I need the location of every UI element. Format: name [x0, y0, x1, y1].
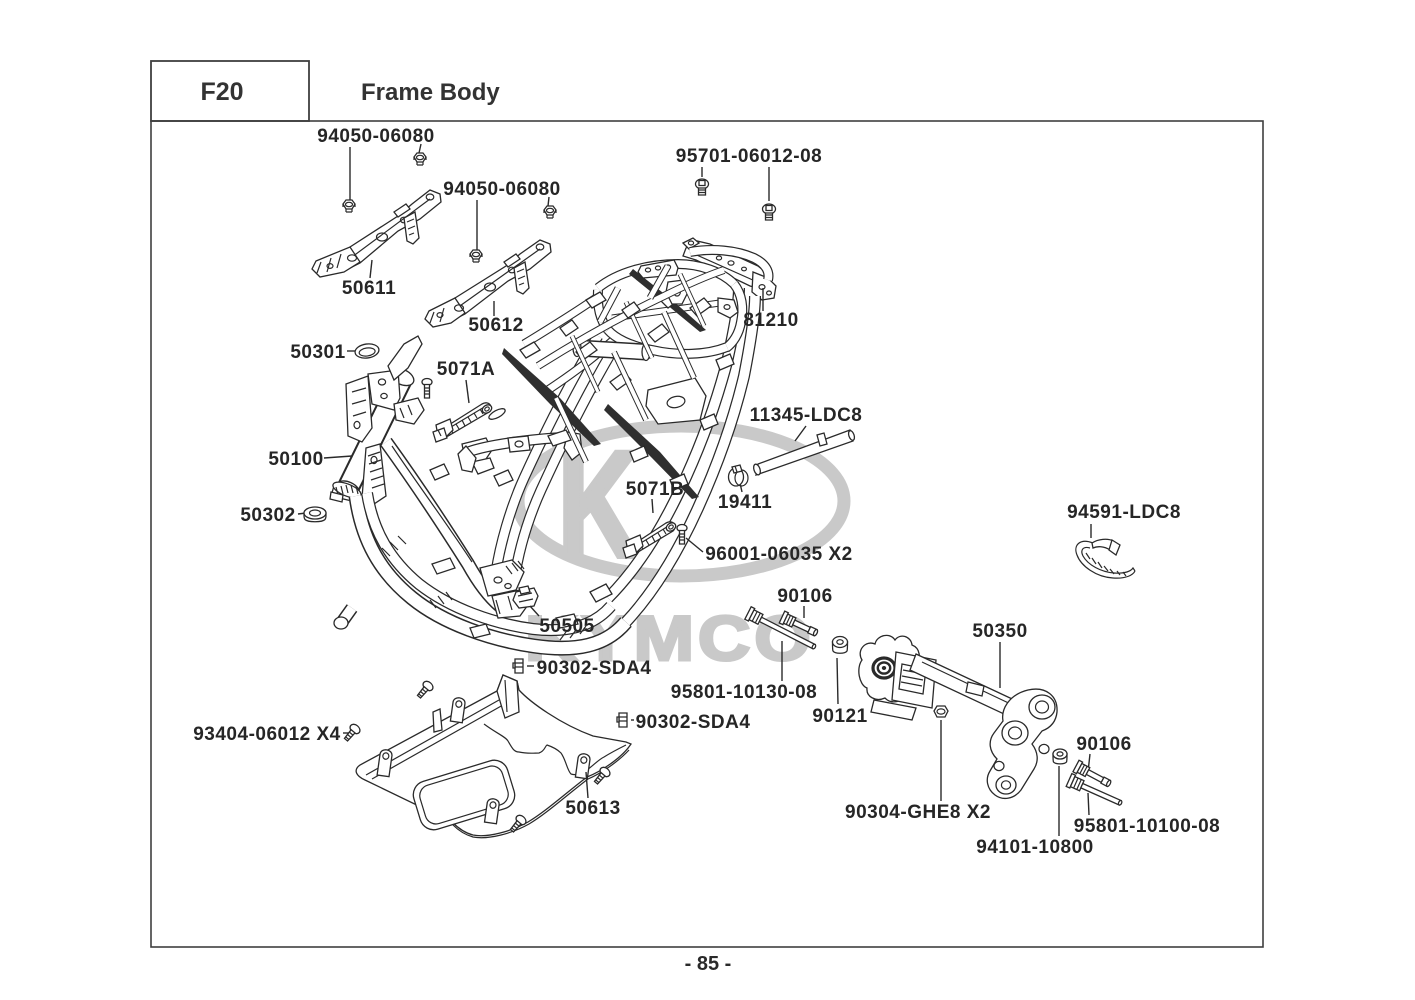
svg-text:50505: 50505: [539, 616, 594, 637]
svg-text:50302: 50302: [240, 505, 295, 526]
svg-text:Frame Body: Frame Body: [361, 79, 500, 106]
svg-text:90121: 90121: [812, 706, 867, 727]
svg-text:11345-LDC8: 11345-LDC8: [750, 405, 863, 426]
svg-text:- 85 -: - 85 -: [685, 953, 732, 975]
svg-text:50613: 50613: [565, 798, 620, 819]
svg-text:90302-SDA4: 90302-SDA4: [636, 712, 751, 733]
svg-text:19411: 19411: [718, 492, 772, 513]
svg-text:F20: F20: [200, 78, 243, 106]
svg-text:95801-10100-08: 95801-10100-08: [1074, 816, 1220, 837]
svg-text:94050-06080: 94050-06080: [443, 179, 561, 200]
svg-text:50612: 50612: [468, 315, 523, 336]
svg-text:93404-06012 X4: 93404-06012 X4: [193, 724, 341, 745]
svg-text:94101-10800: 94101-10800: [976, 837, 1094, 858]
svg-text:50100: 50100: [268, 449, 323, 470]
svg-text:90106: 90106: [1076, 734, 1131, 755]
svg-text:94050-06080: 94050-06080: [317, 126, 435, 147]
svg-text:5071B: 5071B: [626, 479, 685, 500]
svg-text:50350: 50350: [972, 621, 1027, 642]
svg-text:5071A: 5071A: [437, 359, 496, 380]
svg-text:50301: 50301: [290, 342, 345, 363]
svg-text:95801-10130-08: 95801-10130-08: [671, 682, 817, 703]
svg-text:90106: 90106: [777, 586, 832, 607]
svg-text:90304-GHE8 X2: 90304-GHE8 X2: [845, 802, 991, 823]
svg-text:94591-LDC8: 94591-LDC8: [1067, 502, 1181, 523]
svg-text:96001-06035 X2: 96001-06035 X2: [705, 544, 853, 565]
svg-text:81210: 81210: [743, 310, 798, 331]
svg-text:90302-SDA4: 90302-SDA4: [537, 658, 652, 679]
svg-text:50611: 50611: [342, 278, 396, 299]
svg-text:95701-06012-08: 95701-06012-08: [676, 146, 822, 167]
